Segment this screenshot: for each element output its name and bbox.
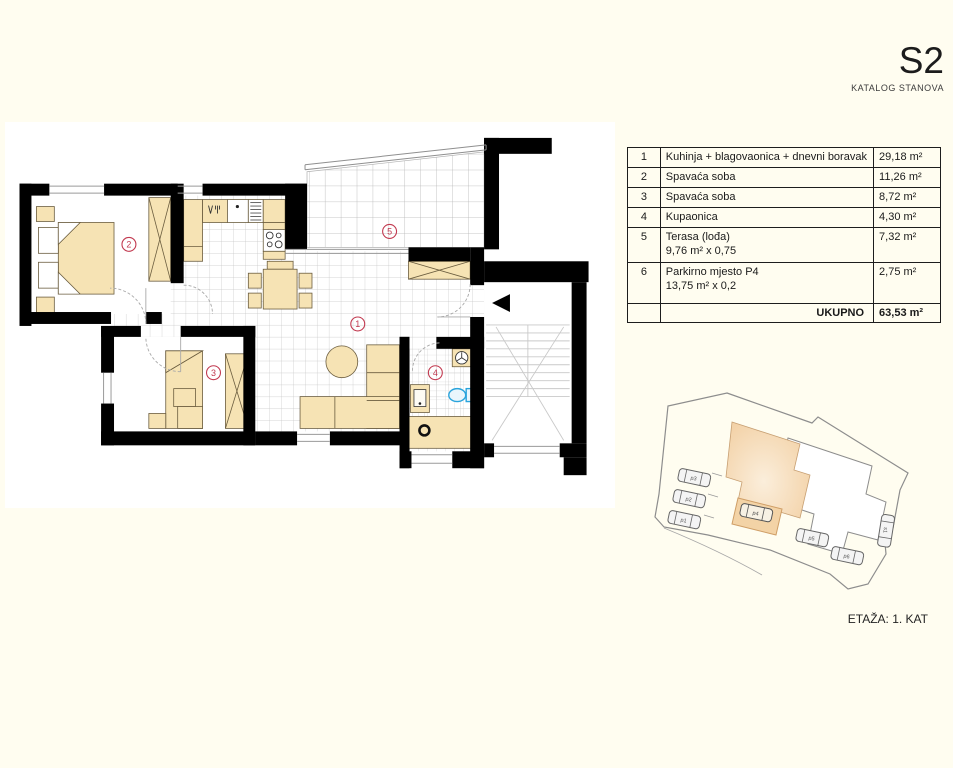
sofa (300, 397, 399, 429)
chair (299, 293, 312, 308)
car-label: p2 (685, 496, 692, 503)
page-subtitle: KATALOG STANOVA (851, 83, 944, 93)
car: p6 (830, 546, 864, 565)
side-table (149, 413, 166, 428)
toilet (449, 389, 472, 402)
svg-text:5: 5 (387, 227, 392, 237)
car-label: s1 (881, 527, 888, 534)
kitchen-sink (227, 200, 248, 223)
dining-table (263, 269, 297, 309)
bathtub (407, 416, 473, 448)
pillow (38, 227, 58, 253)
table-row: 5 Terasa (lođa) 9,76 m² x 0,75 7,32 m² (628, 228, 941, 263)
car-label: p4 (752, 510, 759, 517)
stove (263, 229, 285, 251)
car-label: p3 (690, 475, 697, 482)
hall-wardrobe (408, 261, 470, 279)
catalog-page: S2 KATALOG STANOVA (0, 0, 953, 768)
page-title: S2 (851, 42, 944, 80)
table-row: 1 Kuhinja + blagovaonica + dnevni borava… (628, 148, 941, 168)
coffee-table (326, 346, 358, 378)
site-plan: p3 p2 p1 p4 (650, 378, 950, 603)
floor-plan-panel: 1 2 3 4 5 (5, 122, 615, 508)
site-plan-panel: p3 p2 p1 p4 (650, 378, 950, 608)
table-row: 4 Kupaonica 4,30 m² (628, 208, 941, 228)
table-row: 3 Spavaća soba 8,72 m² (628, 188, 941, 208)
table-row: 2 Spavaća soba 11,26 m² (628, 168, 941, 188)
table-total-row: UKUPNO 63,53 m² (628, 304, 941, 323)
car-label: p5 (808, 535, 815, 542)
page-header: S2 KATALOG STANOVA (851, 42, 944, 93)
svg-text:2: 2 (126, 240, 131, 250)
floor-plan: 1 2 3 4 5 (5, 122, 615, 508)
car: p1 (667, 510, 701, 529)
nightstand (36, 297, 54, 313)
svg-text:4: 4 (433, 368, 438, 378)
svg-text:3: 3 (211, 368, 216, 378)
car: p2 (672, 489, 706, 508)
nightstand (36, 207, 54, 222)
kitchen-cabinet (184, 200, 203, 262)
areas-table: 1 Kuhinja + blagovaonica + dnevni borava… (627, 147, 941, 323)
driveway-line (664, 528, 762, 575)
chair (248, 273, 261, 288)
table-row: 6 Parkirno mjesto P4 13,75 m² x 0,2 2,75… (628, 263, 941, 304)
car-label: p6 (843, 553, 850, 560)
floor-label: ETAŽA: 1. KAT (848, 612, 928, 626)
pillow (38, 262, 58, 288)
svg-text:1: 1 (355, 319, 360, 329)
car-label: p1 (680, 517, 687, 524)
car: p3 (677, 468, 711, 487)
chair (267, 261, 293, 269)
chair (248, 293, 261, 308)
chair (299, 273, 312, 288)
dishwasher (203, 200, 228, 223)
